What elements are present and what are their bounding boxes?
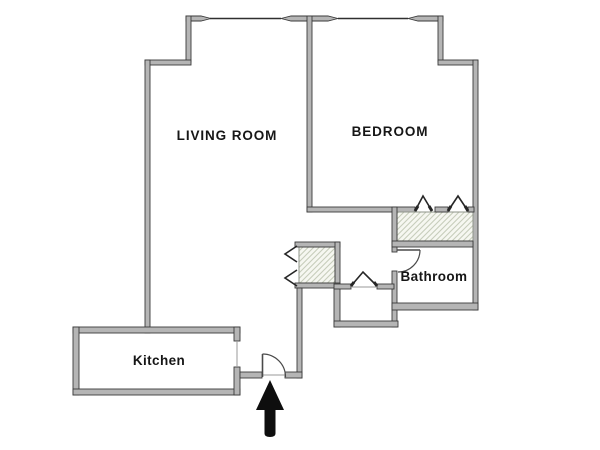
kitchen-top-wall [73, 327, 240, 333]
bathroom-left-wall [392, 271, 397, 327]
bedroom-closet-mid-nub [435, 207, 448, 212]
entry-door-arc [263, 354, 286, 377]
kitchen-label: Kitchen [133, 353, 185, 368]
kitchen-left-wall [73, 327, 79, 395]
walkin-closet-top-nub-right [377, 284, 394, 289]
door-tick [374, 282, 377, 286]
kitchen-right-wall-upper [234, 327, 240, 341]
walkin-closet-bottom-wall [334, 321, 398, 327]
bedroom-label: BEDROOM [352, 124, 429, 139]
bathroom-bottom-wall [392, 303, 478, 310]
bedroom-closet [392, 196, 474, 247]
bedroom-closet-hatch [397, 212, 473, 241]
bathroom [392, 241, 478, 327]
wall-right-exterior [473, 60, 478, 310]
door-tick [465, 206, 468, 211]
kitchen-right-wall-lower [234, 367, 240, 395]
bathroom-top-wall [392, 241, 473, 247]
door-tick [429, 206, 432, 211]
hall-closet-hatch [299, 247, 335, 283]
bathroom-left-upper-nub [392, 247, 397, 252]
bedroom-closet-right-nub [468, 207, 474, 212]
bathroom-label: Bathroom [401, 269, 468, 284]
wall-step-left-vertical [186, 16, 191, 62]
entrance-arrow-icon [256, 380, 284, 437]
hall-closet-right-wall [335, 242, 340, 288]
entry-bottom-wall-left [240, 372, 262, 378]
wall-step-left-horizontal [145, 60, 191, 65]
hall-closet-bottom-wall [295, 283, 340, 288]
hall-closet-top-wall [295, 242, 340, 247]
interior-walls [307, 16, 415, 212]
door-tick [448, 206, 451, 211]
hall-closet [285, 242, 340, 288]
wall-step-right-vertical [438, 16, 443, 62]
wall-bedroom-bottom [307, 207, 415, 212]
bifold-door-icon [351, 272, 377, 286]
door-tick [351, 282, 354, 286]
hallway-left-wall [297, 288, 302, 378]
wall-left-exterior [145, 60, 150, 333]
wall-living-bedroom-divider [307, 16, 312, 212]
walkin-closet-top-nub-left [334, 284, 351, 289]
floor-plan: LIVING ROOM BEDROOM Bathroom Kitchen [0, 0, 600, 450]
kitchen-bottom-wall [73, 389, 240, 395]
wall-step-right-horizontal [438, 60, 478, 65]
entry-bottom-wall-right [285, 372, 302, 378]
floor-plan-drawing: LIVING ROOM BEDROOM Bathroom Kitchen [0, 0, 600, 450]
living-room-label: LIVING ROOM [177, 128, 278, 143]
entry [240, 354, 302, 437]
door-tick [415, 206, 418, 211]
bifold-door-icon [285, 246, 297, 262]
